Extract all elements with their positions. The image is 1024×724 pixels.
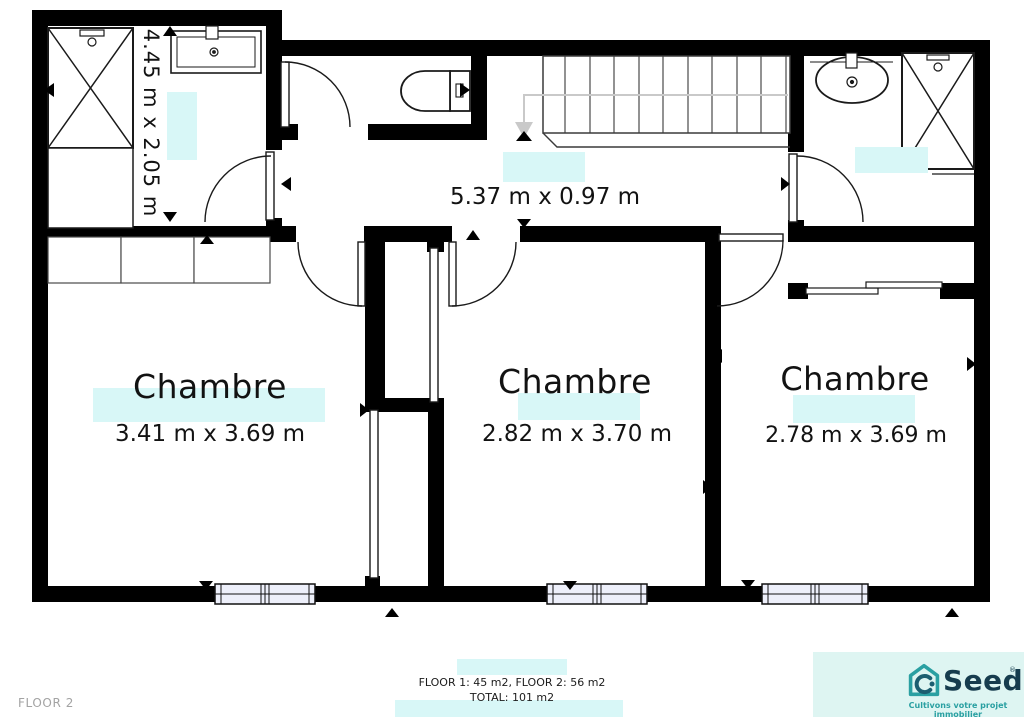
seeds-logo-icon [907, 661, 941, 699]
door-bathroom-right [789, 154, 863, 222]
seeds-brand-block: Seeds ® Cultivons votre projet immobilie… [813, 652, 1024, 717]
bedroom-3-dimensions: 2.78 m x 3.69 m [731, 423, 981, 448]
cabinet-icon [48, 148, 133, 228]
floor-label: FLOOR 2 [18, 696, 74, 710]
highlight-footer-top [457, 659, 567, 675]
bedroom-2-dimensions: 2.82 m x 3.70 m [452, 421, 702, 447]
shower-head-icon [80, 30, 104, 36]
doors [205, 62, 942, 578]
sliding-door-closet [806, 282, 942, 294]
window-bedroom-3 [762, 584, 868, 604]
highlight-hallway [503, 152, 585, 182]
bedroom-1-name: Chambre [85, 367, 335, 406]
bathroom-left-dimensions: 4.45 m x 2.05 m [137, 28, 163, 218]
door-wc [281, 62, 350, 127]
stairs [543, 56, 790, 147]
footer-areas-line: FLOOR 1: 45 m2, FLOOR 2: 56 m2 [362, 676, 662, 689]
highlight-bathroom-left [167, 92, 197, 160]
sink-icon [171, 26, 261, 73]
window-bedroom-2 [547, 584, 647, 604]
hallway-dimensions: 5.37 m x 0.97 m [440, 184, 650, 210]
brand-trademark: ® [1009, 666, 1016, 674]
bedroom-3-name: Chambre [730, 360, 980, 398]
highlight-bathroom-right [855, 147, 928, 173]
shower-head-icon [927, 55, 949, 60]
floorplan-page: 4.45 m x 2.05 m 5.37 m x 0.97 m Chambre … [0, 0, 1024, 724]
door-bedroom-3 [717, 234, 783, 306]
window-bedroom-1 [215, 584, 315, 604]
bedroom-2-name: Chambre [450, 362, 700, 401]
bedroom-1-dimensions: 3.41 m x 3.69 m [85, 421, 335, 447]
closet-bedroom-1 [48, 237, 270, 283]
toilet-icon [401, 71, 470, 111]
door-bedroom-2 [449, 242, 516, 306]
round-sink-icon [810, 53, 893, 103]
footer-total-line: TOTAL: 101 m2 [362, 691, 662, 704]
highlight-bedroom-3 [793, 395, 915, 423]
wc-fixtures [401, 71, 470, 111]
door-bathroom-left [205, 152, 274, 222]
brand-tagline: Cultivons votre projet immobilier [895, 701, 1021, 719]
door-bedroom-1 [298, 242, 365, 306]
